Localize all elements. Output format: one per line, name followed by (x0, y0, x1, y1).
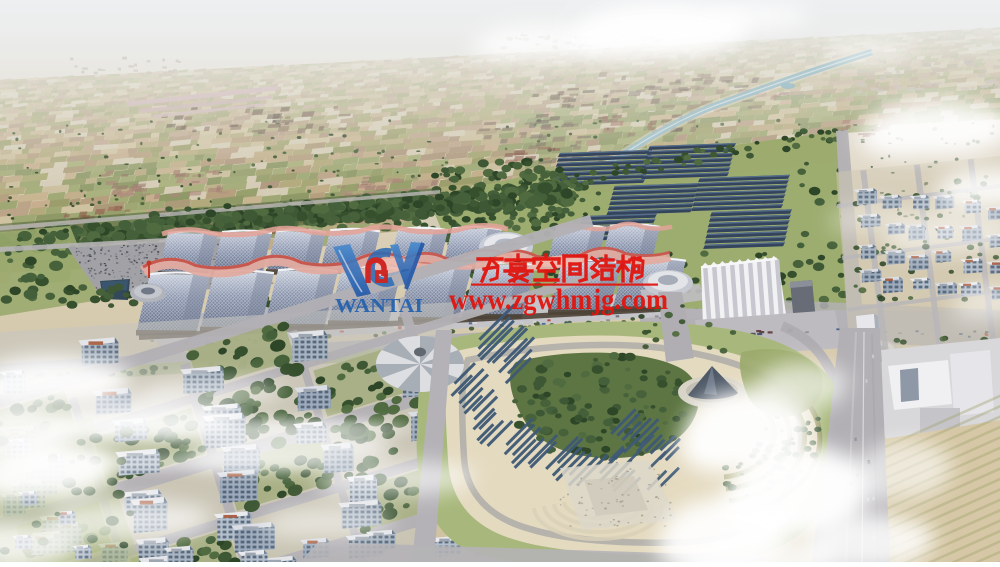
svg-text:WANTAI: WANTAI (335, 295, 423, 317)
svg-text:www.zgwhmjg.com: www.zgwhmjg.com (449, 283, 668, 316)
